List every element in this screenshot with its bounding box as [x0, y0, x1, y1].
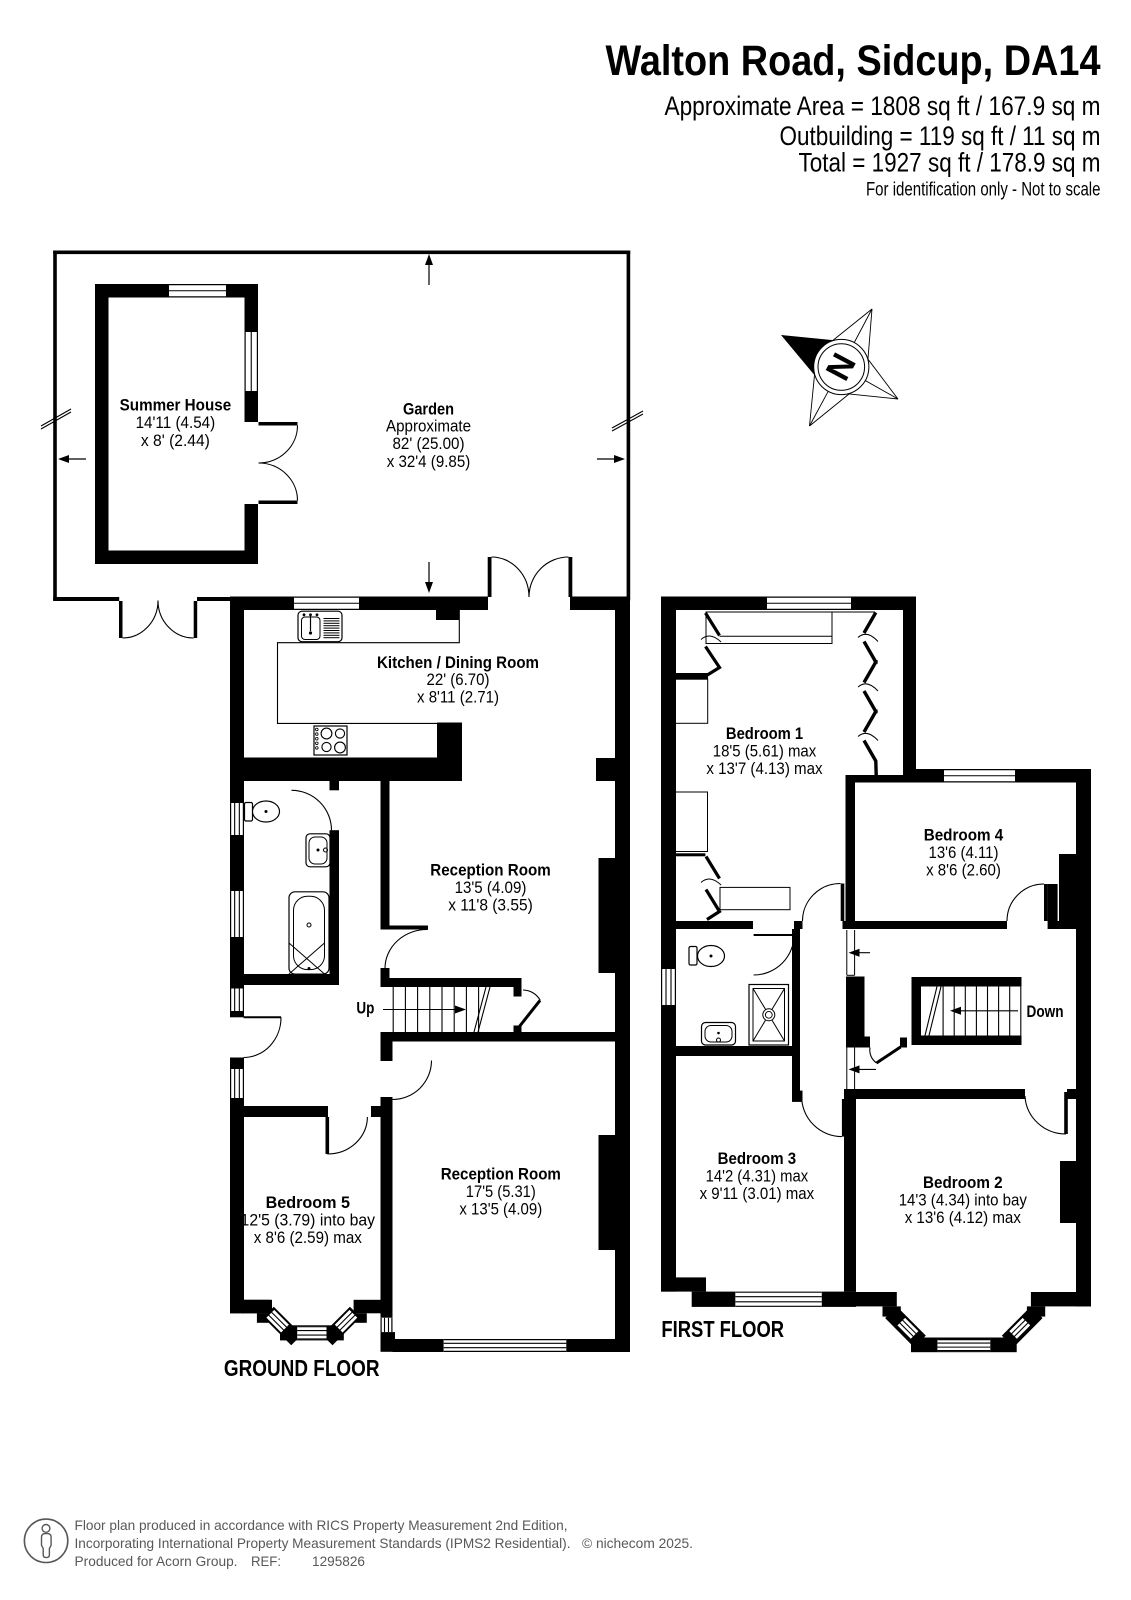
svg-text:Walton Road, Sidcup, DA14: Walton Road, Sidcup, DA14 [606, 37, 1101, 85]
svg-text:Bedroom 1: Bedroom 1 [726, 724, 803, 743]
svg-text:x 11'8 (3.55): x 11'8 (3.55) [448, 896, 533, 915]
svg-text:Summer House: Summer House [120, 395, 232, 414]
svg-text:Up: Up [356, 998, 374, 1017]
svg-text:© nichecom 2025.: © nichecom 2025. [582, 1535, 693, 1551]
svg-text:x 13'5 (4.09): x 13'5 (4.09) [459, 1200, 542, 1219]
svg-text:Bedroom 5: Bedroom 5 [266, 1193, 350, 1212]
svg-text:Approximate: Approximate [386, 416, 471, 435]
svg-text:x 8'11 (2.71): x 8'11 (2.71) [417, 687, 499, 706]
svg-text:1295826: 1295826 [312, 1553, 365, 1569]
svg-text:13'6 (4.11): 13'6 (4.11) [929, 843, 999, 862]
svg-text:For identification only - Not: For identification only - Not to scale [866, 180, 1101, 201]
svg-text:x 9'11 (3.01) max: x 9'11 (3.01) max [700, 1184, 815, 1203]
svg-text:12'5 (3.79) into bay: 12'5 (3.79) into bay [241, 1211, 376, 1230]
svg-text:Produced for Acorn Group.: Produced for Acorn Group. [75, 1553, 238, 1569]
svg-text:13'5 (4.09): 13'5 (4.09) [455, 878, 527, 897]
svg-text:x 32'4 (9.85): x 32'4 (9.85) [387, 452, 471, 471]
svg-text:Down: Down [1027, 1002, 1064, 1021]
svg-text:x 13'6 (4.12) max: x 13'6 (4.12) max [905, 1208, 1022, 1227]
svg-text:Bedroom 4: Bedroom 4 [924, 826, 1004, 845]
svg-text:Incorporating International Pr: Incorporating International Property Mea… [75, 1535, 571, 1551]
svg-text:18'5 (5.61) max: 18'5 (5.61) max [713, 742, 817, 761]
svg-text:x 8'6 (2.59) max: x 8'6 (2.59) max [254, 1228, 363, 1247]
svg-text:14'2 (4.31) max: 14'2 (4.31) max [706, 1167, 809, 1186]
svg-text:Reception Room: Reception Room [441, 1165, 561, 1184]
svg-text:FIRST FLOOR: FIRST FLOOR [661, 1316, 784, 1342]
svg-text:REF:: REF: [251, 1553, 281, 1569]
svg-text:Floor plan produced in accorda: Floor plan produced in accordance with R… [75, 1517, 568, 1533]
svg-text:22' (6.70): 22' (6.70) [427, 670, 490, 689]
svg-text:x 13'7 (4.13) max: x 13'7 (4.13) max [706, 759, 823, 778]
svg-text:17'5 (5.31): 17'5 (5.31) [466, 1182, 536, 1201]
svg-text:Outbuilding = 119 sq ft / 11 s: Outbuilding = 119 sq ft / 11 sq m [780, 121, 1101, 151]
svg-text:Bedroom 2: Bedroom 2 [923, 1173, 1003, 1192]
svg-text:82' (25.00): 82' (25.00) [393, 434, 465, 453]
svg-text:GROUND FLOOR: GROUND FLOOR [224, 1355, 380, 1381]
svg-text:x 8' (2.44): x 8' (2.44) [141, 431, 210, 450]
svg-text:x 8'6 (2.60): x 8'6 (2.60) [926, 860, 1001, 879]
svg-text:Bedroom 3: Bedroom 3 [718, 1149, 797, 1168]
svg-text:Total = 1927 sq ft / 178.9 sq: Total = 1927 sq ft / 178.9 sq m [799, 148, 1101, 178]
svg-text:14'11 (4.54): 14'11 (4.54) [136, 413, 216, 432]
svg-text:14'3 (4.34) into bay: 14'3 (4.34) into bay [899, 1190, 1028, 1209]
svg-text:Reception Room: Reception Room [430, 861, 551, 880]
svg-text:Approximate Area = 1808 sq ft: Approximate Area = 1808 sq ft / 167.9 sq… [665, 91, 1101, 121]
